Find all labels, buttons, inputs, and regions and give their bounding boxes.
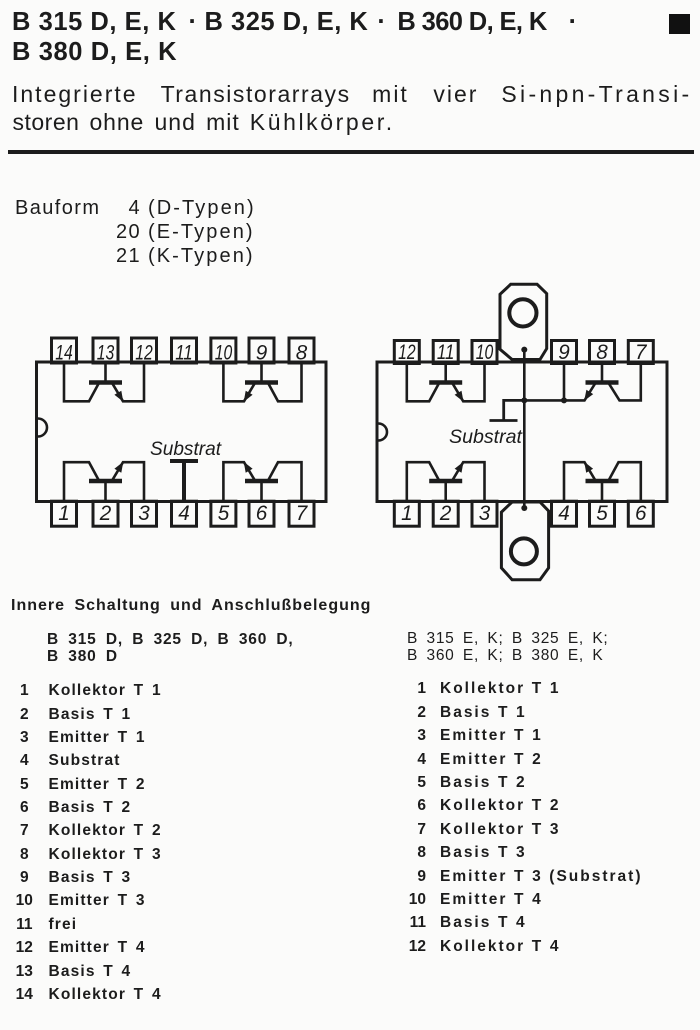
- svg-text:14: 14: [55, 342, 72, 365]
- svg-text:8: 8: [596, 341, 608, 364]
- svg-text:1: 1: [401, 502, 413, 525]
- svg-text:9: 9: [558, 341, 570, 364]
- svg-text:4: 4: [558, 502, 570, 525]
- svg-text:13: 13: [97, 342, 115, 365]
- svg-text:2: 2: [99, 502, 112, 525]
- svg-text:10: 10: [215, 342, 233, 365]
- svg-text:1: 1: [58, 502, 69, 525]
- svg-text:4: 4: [178, 502, 190, 525]
- svg-text:11: 11: [437, 341, 455, 364]
- svg-text:3: 3: [138, 502, 150, 525]
- svg-text:8: 8: [296, 342, 308, 365]
- svg-text:10: 10: [476, 341, 494, 364]
- svg-text:12: 12: [398, 341, 416, 364]
- svg-text:12: 12: [135, 342, 153, 365]
- svg-text:6: 6: [256, 502, 268, 525]
- svg-text:9: 9: [256, 342, 268, 365]
- svg-text:Substrat: Substrat: [449, 426, 524, 448]
- svg-text:7: 7: [635, 341, 648, 364]
- svg-text:5: 5: [218, 502, 230, 525]
- svg-text:3: 3: [479, 502, 491, 525]
- svg-text:2: 2: [439, 502, 452, 525]
- svg-text:6: 6: [635, 502, 647, 525]
- svg-text:Substrat: Substrat: [150, 438, 223, 460]
- svg-text:5: 5: [596, 502, 608, 525]
- svg-text:7: 7: [296, 502, 309, 525]
- svg-text:11: 11: [175, 342, 193, 365]
